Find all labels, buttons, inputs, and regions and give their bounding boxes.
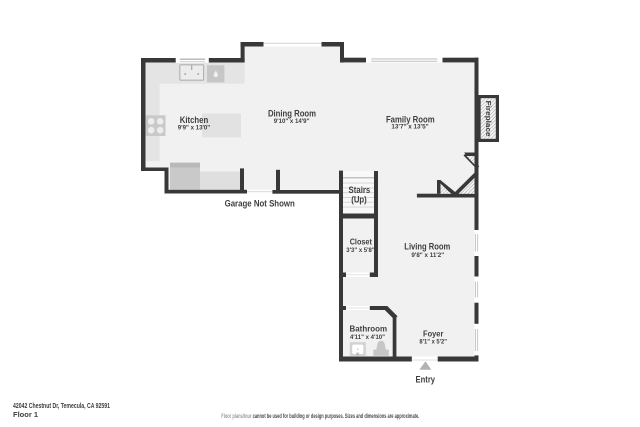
- svg-text:Garage Not Shown: Garage Not Shown: [225, 197, 295, 208]
- svg-text:42042 Chestnut Dr, Temecula, C: 42042 Chestnut Dr, Temecula, CA 92591: [13, 401, 110, 410]
- svg-text:Bathroom: Bathroom: [350, 324, 388, 334]
- svg-text:9'8" x 11'2": 9'8" x 11'2": [411, 252, 444, 259]
- svg-text:(Up): (Up): [351, 195, 367, 205]
- svg-text:13'7" x 13'5": 13'7" x 13'5": [391, 124, 428, 131]
- svg-text:Living Room: Living Room: [404, 242, 450, 252]
- svg-text:9'10" x 14'9": 9'10" x 14'9": [274, 118, 310, 125]
- svg-text:4'11" x 4'10": 4'11" x 4'10": [350, 334, 385, 341]
- svg-text:Closet: Closet: [350, 236, 372, 246]
- svg-text:Foyer: Foyer: [423, 328, 444, 338]
- svg-text:3'3" x 5'8": 3'3" x 5'8": [346, 247, 374, 254]
- svg-text:8'1" x 5'2": 8'1" x 5'2": [419, 339, 447, 346]
- svg-text:Floor plans/tour cannot be use: Floor plans/tour cannot be used for buil…: [221, 414, 419, 420]
- svg-text:Kitchen: Kitchen: [180, 115, 209, 125]
- svg-text:Floor 1: Floor 1: [13, 410, 38, 419]
- svg-text:Fireplace: Fireplace: [484, 101, 493, 137]
- svg-text:9'9" x 13'0": 9'9" x 13'0": [178, 125, 210, 132]
- svg-text:Entry: Entry: [416, 375, 436, 385]
